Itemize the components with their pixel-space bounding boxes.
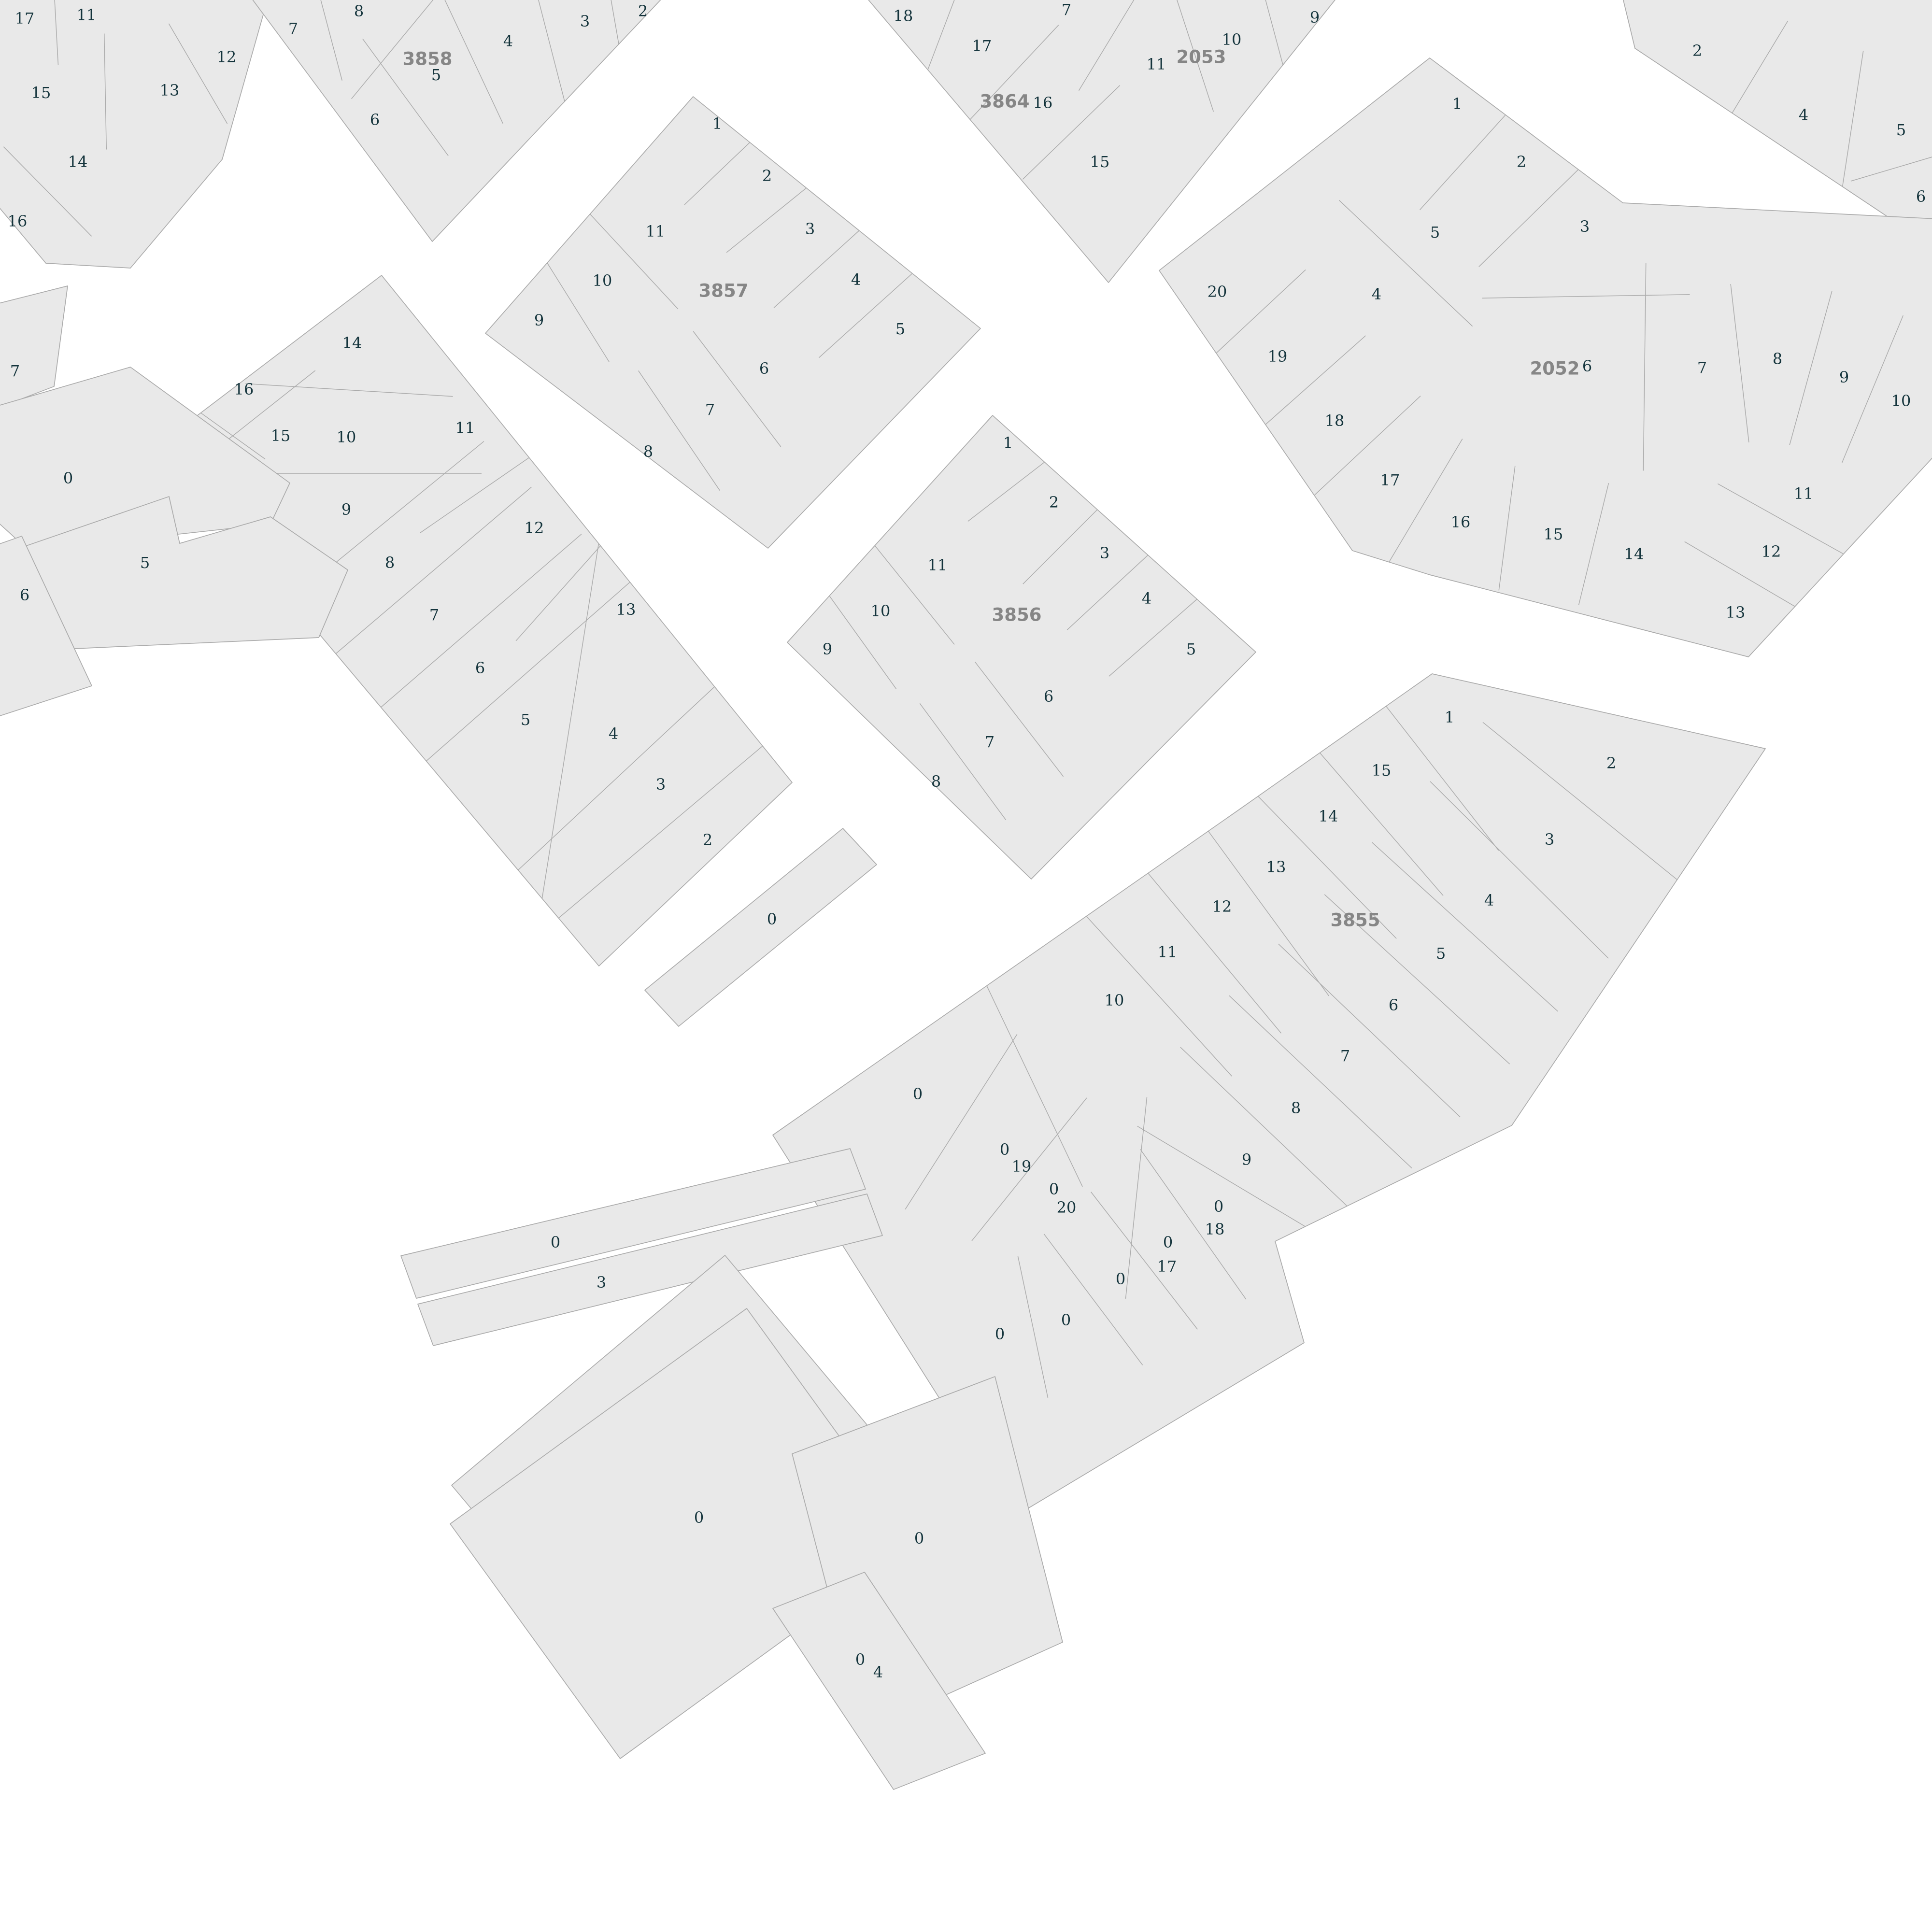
lot-label: 20 — [1057, 1198, 1077, 1217]
lot-label: 14 — [1319, 807, 1338, 825]
parcel-block-3856: 12345111096783856 — [787, 415, 1256, 879]
lot-label: 14 — [342, 334, 362, 352]
lot-label: 20 — [1207, 283, 1227, 301]
lot-label: 10 — [593, 271, 612, 290]
lot-label: 10 — [1222, 30, 1242, 49]
lot-label: 5 — [1186, 640, 1196, 658]
lot-label: 0 — [1049, 1180, 1059, 1198]
lot-label: 6 — [1582, 357, 1592, 375]
lot-label: 12 — [217, 48, 237, 66]
lot-label: 2 — [762, 167, 772, 185]
lot-label: 10 — [1891, 392, 1911, 410]
block-label: 2052 — [1530, 358, 1580, 379]
lot-label: 0 — [914, 1529, 924, 1548]
lot-label: 9 — [534, 311, 544, 329]
lot-label: 3 — [1580, 217, 1590, 236]
lot-label: 6 — [759, 359, 769, 378]
lot-label: 17 — [1157, 1257, 1177, 1276]
cadastral-map[interactable]: 1711121315141678543263858181716157111093… — [0, 0, 1932, 1932]
lot-label: 5 — [140, 554, 150, 572]
lot-label: 1 — [1452, 95, 1462, 113]
lot-label: 18 — [1325, 412, 1345, 430]
lot-label: 11 — [928, 556, 948, 574]
block-label: 3858 — [403, 49, 453, 70]
lot-label: 16 — [8, 212, 28, 230]
lot-label: 0 — [551, 1233, 560, 1251]
lot-label: 17 — [972, 37, 992, 55]
lot-label: 1 — [712, 114, 722, 133]
lot-label: 4 — [1142, 589, 1151, 608]
lot-label: 15 — [1544, 525, 1563, 543]
lot-label: 7 — [1697, 358, 1707, 377]
lot-label: 11 — [1794, 484, 1814, 503]
block-label: 3856 — [992, 605, 1042, 625]
lot-label: 14 — [68, 153, 88, 171]
lot-label: 16 — [1033, 94, 1053, 112]
lot-label: 1 — [1003, 434, 1013, 452]
lot-label: 12 — [1762, 542, 1781, 561]
lot-label: 4 — [873, 1663, 883, 1681]
lot-label: 11 — [646, 222, 666, 241]
parcel-nw-block[interactable] — [0, 0, 273, 268]
lot-label: 13 — [616, 600, 636, 619]
lot-label: 4 — [609, 724, 618, 743]
lot-label: 13 — [1726, 603, 1746, 622]
lot-label: 7 — [429, 606, 439, 624]
lot-label: 0 — [1000, 1140, 1009, 1159]
lot-label: 2 — [1049, 493, 1059, 511]
lot-label: 4 — [851, 270, 861, 289]
lot-label: 11 — [1158, 943, 1178, 961]
lot-label: 2 — [1606, 754, 1616, 772]
lot-label: 16 — [1451, 513, 1471, 531]
lot-label: 8 — [643, 442, 653, 461]
lot-label: 3 — [580, 12, 590, 30]
lot-label: 9 — [823, 640, 832, 658]
lot-label: 4 — [503, 32, 513, 50]
lot-label: 5 — [895, 320, 905, 338]
lot-label: 6 — [1044, 687, 1053, 706]
lot-label: 7 — [1062, 0, 1071, 19]
lot-label: 15 — [1372, 761, 1392, 780]
lot-label: 7 — [1340, 1047, 1350, 1065]
lot-label: 4 — [1484, 891, 1494, 909]
lot-label: 11 — [455, 419, 475, 437]
lot-label: 2 — [638, 2, 648, 20]
lot-label: 17 — [1380, 471, 1400, 489]
lot-label: 5 — [1430, 223, 1440, 241]
parcel-block-3857: 12345111096783857 — [485, 95, 980, 548]
lot-label: 18 — [894, 7, 913, 25]
parcel-3856[interactable] — [787, 415, 1256, 879]
lot-label: 10 — [1105, 991, 1124, 1009]
lot-label: 0 — [63, 469, 73, 487]
lot-label: 14 — [1624, 545, 1644, 563]
lot-label: 5 — [1896, 121, 1906, 139]
lot-label: 3 — [805, 220, 815, 238]
lot-label: 12 — [1212, 897, 1232, 916]
block-label: 3855 — [1331, 910, 1380, 931]
lot-label: 2 — [1692, 42, 1702, 60]
lot-label: 10 — [337, 428, 356, 446]
lot-label: 6 — [1916, 187, 1926, 206]
lot-label: 8 — [354, 2, 364, 20]
lot-label: 0 — [1163, 1233, 1173, 1251]
parcel-3857[interactable] — [485, 97, 980, 548]
lot-label: 19 — [1012, 1157, 1032, 1176]
lot-label: 18 — [1205, 1220, 1225, 1238]
map-canvas[interactable]: 1711121315141678543263858181716157111093… — [0, 0, 1932, 1932]
lot-label: 7 — [10, 362, 20, 380]
lot-label: 11 — [1147, 55, 1166, 73]
lot-label: 9 — [1839, 368, 1849, 386]
lot-label: 15 — [271, 426, 291, 445]
lot-label: 9 — [341, 500, 351, 519]
lot-label: 0 — [995, 1325, 1005, 1343]
lot-label: 13 — [1266, 858, 1286, 876]
lot-label: 7 — [705, 400, 715, 419]
lot-label: 3 — [597, 1273, 606, 1292]
lot-label: 3 — [656, 775, 666, 794]
lot-label: 12 — [525, 519, 544, 537]
lot-label: 9 — [1310, 8, 1320, 27]
lot-label: 16 — [234, 380, 254, 398]
lot-label: 8 — [931, 772, 941, 791]
lot-label: 19 — [1268, 347, 1288, 366]
lot-label: 6 — [1389, 996, 1398, 1014]
block-label: 2053 — [1177, 47, 1226, 68]
lot-label: 0 — [1116, 1270, 1125, 1288]
lot-label: 0 — [694, 1508, 704, 1527]
lot-label: 6 — [475, 659, 485, 677]
lot-label: 8 — [1291, 1099, 1301, 1117]
lot-label: 13 — [160, 81, 180, 99]
lot-label: 2 — [703, 831, 712, 849]
lot-label: 10 — [871, 602, 891, 620]
lot-label: 1 — [1445, 708, 1454, 726]
lot-label: 17 — [15, 9, 35, 28]
lot-label: 0 — [1061, 1311, 1071, 1329]
lot-label: 8 — [1773, 350, 1782, 368]
lot-label: 15 — [31, 84, 51, 102]
lot-label: 4 — [1372, 285, 1381, 303]
lot-label: 0 — [1214, 1197, 1223, 1216]
lot-label: 7 — [985, 733, 994, 751]
lot-label: 2 — [1517, 153, 1526, 171]
block-label: 3864 — [980, 91, 1030, 112]
lot-label: 11 — [77, 6, 97, 24]
lot-label: 15 — [1090, 153, 1110, 171]
lot-label: 6 — [20, 586, 29, 604]
lot-label: 5 — [521, 710, 530, 729]
lot-label: 4 — [1799, 106, 1808, 124]
lot-label: 6 — [370, 111, 380, 129]
lot-label: 7 — [288, 19, 298, 38]
lot-label: 5 — [1436, 944, 1446, 963]
lot-label: 0 — [855, 1650, 865, 1669]
lot-label: 3 — [1545, 830, 1554, 849]
parcel-block-nw-block: 17111213151416 — [0, 0, 273, 268]
block-label: 3857 — [699, 281, 749, 301]
lot-label: 3 — [1100, 544, 1109, 562]
lot-label: 0 — [913, 1085, 923, 1103]
lot-label: 9 — [1242, 1151, 1251, 1169]
lot-label: 8 — [385, 554, 395, 572]
lot-label: 0 — [767, 910, 777, 928]
